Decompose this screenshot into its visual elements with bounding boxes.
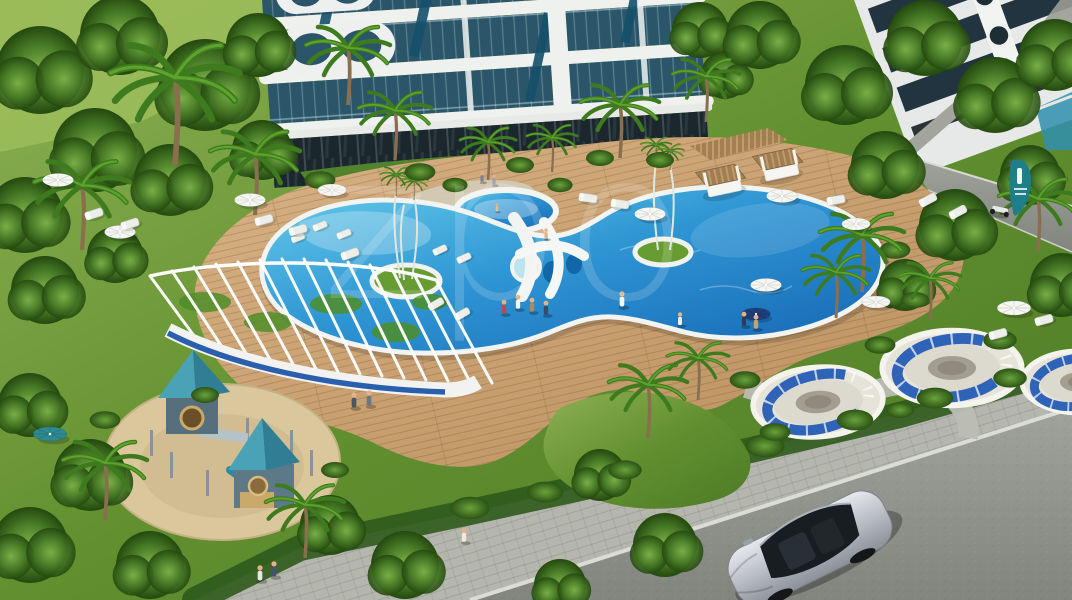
bush	[191, 387, 219, 403]
scene: zpo	[0, 0, 1072, 600]
bush	[608, 460, 642, 479]
bush	[886, 402, 914, 418]
bush	[760, 423, 791, 441]
bush	[405, 163, 436, 181]
bush	[993, 368, 1027, 387]
bush	[586, 150, 614, 166]
bush	[527, 482, 563, 503]
bush	[450, 497, 489, 519]
bush	[646, 152, 674, 168]
bush	[90, 411, 121, 429]
bush	[442, 178, 467, 192]
bush	[865, 336, 896, 354]
bush	[547, 178, 572, 192]
bush	[917, 388, 953, 409]
render-canvas	[0, 0, 1072, 600]
bush	[506, 157, 534, 173]
sign-emblem	[1017, 168, 1022, 184]
bush	[321, 462, 349, 478]
bush	[730, 371, 761, 389]
bush	[837, 410, 873, 431]
